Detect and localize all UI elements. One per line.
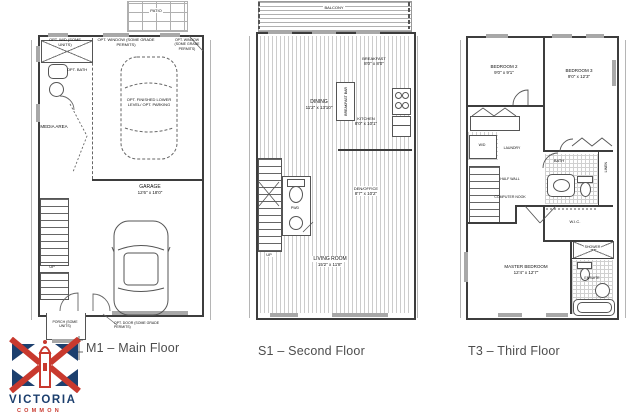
- t3-shower-stall: [573, 241, 614, 259]
- t3-bath-label: BATH: [547, 158, 571, 163]
- s1-dining-name: DINING: [310, 99, 328, 105]
- t3-shower-bottom-wall: [570, 258, 613, 259]
- m1-garage-door: [112, 311, 188, 315]
- m1-window-top-3: [160, 33, 180, 37]
- s1-living-dims: 15'2" x 11'8": [317, 262, 343, 267]
- s1-stairs: [258, 158, 282, 252]
- s1-living-room-label: LIVING ROOM 15'2" x 11'8": [305, 256, 355, 269]
- s1-kitchen-label: KITCHEN 8'0" x 10'1": [347, 116, 385, 127]
- t3-bed2-closet-shelf: [470, 116, 520, 131]
- m1-up-label: UP: [44, 264, 60, 269]
- t3-window-left: [464, 252, 468, 282]
- t3-bed2-bottom-wall: [468, 105, 545, 107]
- t3-bedroom-divider-wall: [543, 38, 545, 150]
- s1-title: S1 – Second Floor: [258, 344, 365, 358]
- t3-wic-bottom-wall: [543, 240, 613, 242]
- t3-left-eave-line: [460, 40, 461, 318]
- m1-left-eave-line: [31, 40, 32, 320]
- m1-media-area-label: MEDIA AREA: [40, 124, 68, 130]
- s1-dining-label: DINING 11'2" x 13'10": [298, 99, 340, 112]
- s1-pwd-sink: [289, 216, 303, 230]
- s1-pwd-label: PWD: [284, 206, 306, 210]
- t3-ensuite-left-wall: [570, 240, 572, 314]
- s1-breakfast-label: BREAKFAST 8'0" x 8'0": [352, 56, 396, 67]
- s1-window-top-1: [268, 30, 292, 34]
- t3-wd-label: W/D: [471, 143, 493, 147]
- s1-up-text: UP: [265, 252, 273, 257]
- m1-toilet: [49, 82, 64, 97]
- t3-right-eave-line: [625, 40, 626, 318]
- t3-bath-toilet: [580, 182, 591, 197]
- t3-master-name: MASTER BEDROOM: [504, 264, 547, 269]
- s1-window-bottom-2: [332, 313, 388, 317]
- t3-ensuite-label: ENSUITE: [578, 276, 606, 280]
- m1-patio-label: PATIO: [140, 8, 172, 13]
- t3-bath-bottom-wall: [543, 205, 613, 207]
- m1-patio-deck: [127, 1, 188, 32]
- m1-entry-steps: [40, 272, 69, 300]
- t3-wic-left-wall: [543, 205, 545, 240]
- m1-title: M1 – Main Floor: [86, 341, 179, 355]
- t3-bath-sink: [553, 179, 570, 192]
- t3-bed3-dims: 9'0" x 12'3": [568, 74, 590, 79]
- t3-title: T3 – Third Floor: [468, 344, 560, 358]
- m1-garage-name: GARAGE: [139, 184, 160, 190]
- s1-pwd-toilet: [289, 186, 303, 203]
- flag-graphic: [11, 339, 79, 391]
- t3-bed2-dims: 9'0" x 9'1": [494, 70, 514, 75]
- t3-linen-text: LINEN: [604, 162, 608, 172]
- s1-breakfast-dims: 8'0" x 8'0": [364, 61, 384, 66]
- m1-opt-wd-label: OPT. W/D (SOME UNITS): [42, 37, 88, 47]
- victoria-common-logo-icon: [9, 337, 81, 393]
- logo-subtext: COMMON: [17, 408, 62, 414]
- m1-opt-window-label: OPT. WINDOW (SOME GRADE PERMITS): [96, 37, 156, 47]
- m1-garage-label: GARAGE 12'6" x 18'0": [120, 184, 180, 197]
- m1-opt-window2-label: OPT. WINDOW (SOME GRADE PERMITS): [172, 38, 202, 51]
- t3-window-top-1: [486, 34, 508, 38]
- m1-opt-door-note: OPT. DOOR (SOME GRADE PERMITS): [114, 321, 160, 330]
- s1-burner-1: [395, 92, 402, 99]
- t3-linen-label: LINEN: [599, 162, 613, 196]
- m1-garage-dims: 12'6" x 18'0": [138, 190, 163, 195]
- t3-half-wall-label: HALF WALL: [500, 177, 520, 181]
- t3-master-bedroom-label: MASTER BEDROOM 12'4" x 12'7": [496, 264, 556, 275]
- s1-window-top-2: [312, 30, 336, 34]
- t3-bedroom3-label: BEDROOM 3 9'0" x 12'3": [550, 68, 608, 79]
- t3-bed3-closet-shelf: [572, 146, 613, 150]
- t3-window-bottom-2: [546, 313, 568, 317]
- s1-balcony-text: BALCONY: [323, 5, 344, 10]
- m1-stairs: [40, 198, 69, 266]
- s1-burner-2: [402, 92, 409, 99]
- t3-bed3-bottom-wall: [543, 150, 613, 152]
- t3-bedroom2-label: BEDROOM 2 9'0" x 9'1": [478, 64, 530, 75]
- s1-den-office-label: DEN/OFFICE 8'7" x 10'2": [342, 186, 390, 197]
- t3-window-right: [612, 60, 616, 86]
- m1-garage-wall: [92, 179, 202, 181]
- t3-master-dims: 12'4" x 12'7": [514, 270, 539, 275]
- m1-patio-text: PATIO: [149, 8, 162, 13]
- m1-window-left-2: [36, 104, 40, 122]
- t3-shower-label: SHOWER: [576, 245, 609, 249]
- s1-left-eave-line: [249, 36, 250, 318]
- s1-fridge-divider: [393, 125, 410, 126]
- t3-window-top-2: [552, 34, 572, 38]
- s1-burner-3: [395, 102, 402, 109]
- t3-tub-basin: [577, 302, 612, 313]
- m1-opt-bath-label: OPT. BATH: [60, 67, 94, 72]
- t3-nook-top-wall: [515, 205, 545, 207]
- t3-shower-text: SHOWER: [584, 245, 602, 249]
- t3-bath-vanity: [547, 174, 575, 197]
- s1-living-name: LIVING ROOM: [312, 256, 347, 262]
- t3-master-top-wall: [468, 222, 517, 224]
- s1-den-dims: 8'7" x 10'2": [354, 191, 378, 196]
- floorplan-sheet: PATIO OPT. W/D (SOME UNITS) OPT. WINDOW …: [0, 0, 639, 417]
- t3-window-top-3: [586, 34, 604, 38]
- m1-opt-lower-level-label: OPT. FINISHED LOWER LEVEL/ OPT. PARKING: [124, 97, 174, 107]
- s1-up-label: UP: [261, 252, 277, 257]
- t3-wic-label: W.I.C.: [560, 219, 590, 224]
- s1-den-wall: [338, 149, 412, 151]
- s1-breakfast-bar-label: BREAKFAST BAR: [344, 87, 348, 116]
- m1-right-eave-line: [210, 40, 211, 320]
- m1-porch-label: PORCH (SOME UNITS): [48, 320, 82, 329]
- m1-window-left-1: [36, 46, 40, 62]
- logo-wordmark: VICTORIA: [9, 394, 77, 406]
- t3-nook-jog-wall: [515, 205, 517, 224]
- t3-bed2-name: BEDROOM 2: [490, 64, 517, 69]
- s1-dining-dims: 11'2" x 13'10": [306, 105, 333, 110]
- t3-window-bottom-1: [498, 313, 522, 317]
- s1-right-eave-line: [417, 36, 418, 318]
- t3-bed3-name: BEDROOM 3: [565, 68, 592, 73]
- t3-ensuite-tub: [573, 299, 615, 316]
- s1-kitchen-dims: 8'0" x 10'1": [355, 121, 377, 126]
- t3-computer-nook-label: COMPUTER NOOK: [494, 195, 526, 199]
- s1-window-top-3: [356, 30, 380, 34]
- s1-stove: [392, 88, 411, 115]
- s1-fridge: [392, 116, 411, 137]
- s1-burner-4: [402, 102, 409, 109]
- t3-ensuite-sink: [595, 283, 610, 298]
- s1-balcony-label: BALCONY: [316, 5, 352, 10]
- s1-window-bottom-1: [270, 313, 298, 317]
- t3-laundry-label: LAUNDRY: [497, 146, 527, 150]
